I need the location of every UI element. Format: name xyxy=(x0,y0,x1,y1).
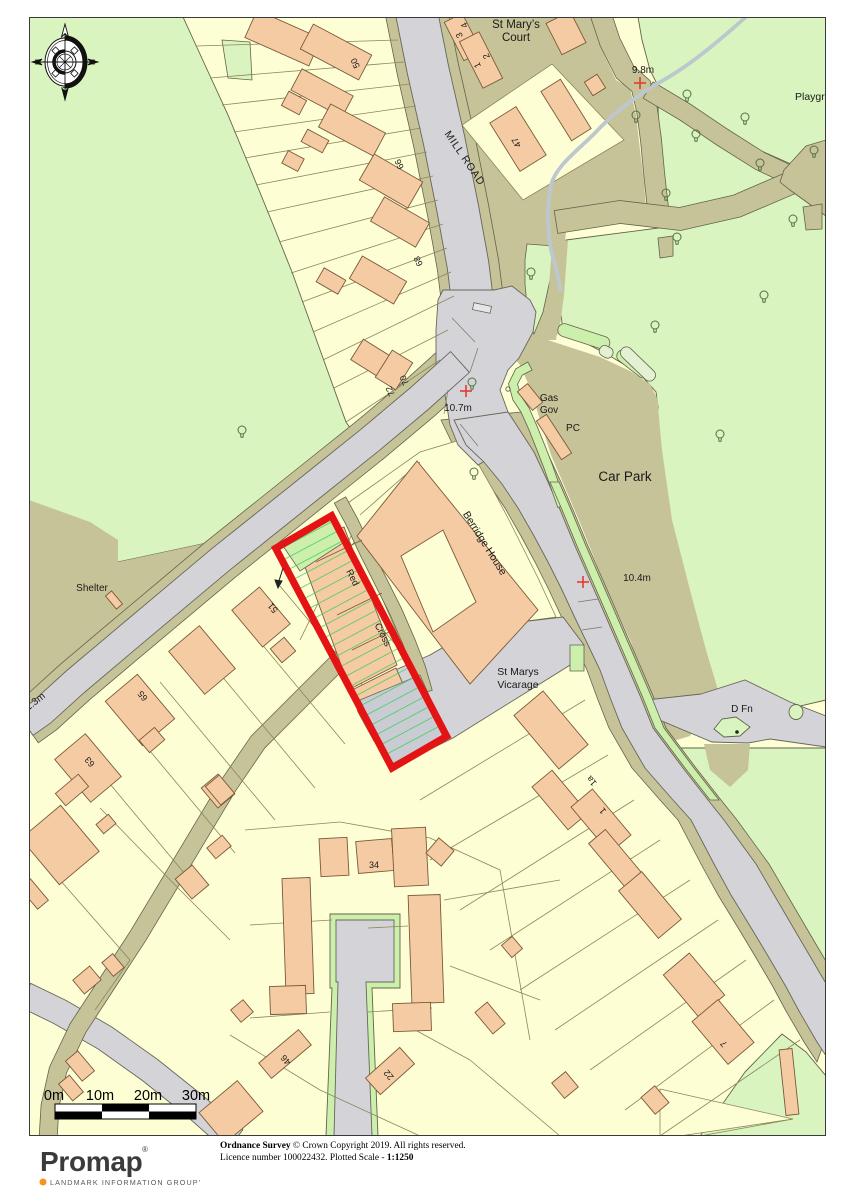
svg-text:20m: 20m xyxy=(134,1088,162,1104)
svg-text:Ordnance Survey © Crown Copyr: Ordnance Survey © Crown Copyright 2019. … xyxy=(220,1140,466,1151)
svg-text:Gas: Gas xyxy=(540,393,558,404)
svg-text:St Marys: St Marys xyxy=(497,666,538,678)
svg-text:10m: 10m xyxy=(86,1088,114,1104)
svg-text:St Mary’s: St Mary’s xyxy=(492,19,540,31)
svg-text:PC: PC xyxy=(566,423,580,434)
svg-text:30m: 30m xyxy=(182,1088,210,1104)
svg-text:9.8m: 9.8m xyxy=(632,65,654,76)
svg-text:D Fn: D Fn xyxy=(731,704,753,715)
svg-text:Promap: Promap xyxy=(40,1146,142,1177)
svg-text:LANDMARK INFORMATION GROUP’: LANDMARK INFORMATION GROUP’ xyxy=(50,1178,201,1187)
svg-text:Vicarage: Vicarage xyxy=(497,679,538,691)
svg-text:Court: Court xyxy=(502,32,531,44)
svg-text:Gov: Gov xyxy=(540,405,558,416)
svg-text:Car Park: Car Park xyxy=(598,469,652,484)
svg-text:10.4m: 10.4m xyxy=(623,573,651,584)
svg-text:0m: 0m xyxy=(44,1088,64,1104)
svg-text:10.7m: 10.7m xyxy=(444,403,472,414)
svg-text:Licence number 100022432. Plot: Licence number 100022432. Plotted Scale … xyxy=(220,1153,414,1163)
svg-text:34: 34 xyxy=(369,860,379,870)
svg-text:Shelter: Shelter xyxy=(76,583,108,594)
svg-text:®: ® xyxy=(142,1145,148,1154)
